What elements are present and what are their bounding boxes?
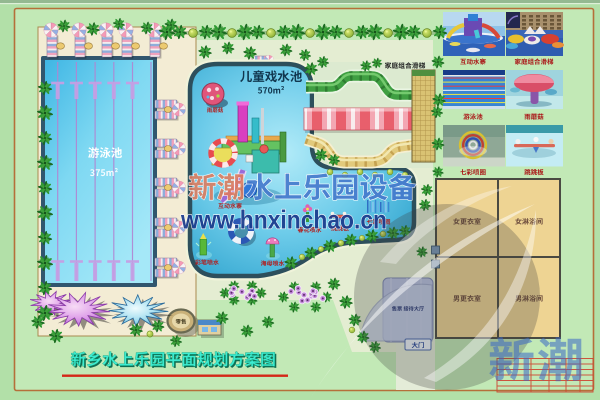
svg-text:www.hnxinchao.cn: www.hnxinchao.cn [180, 205, 387, 235]
